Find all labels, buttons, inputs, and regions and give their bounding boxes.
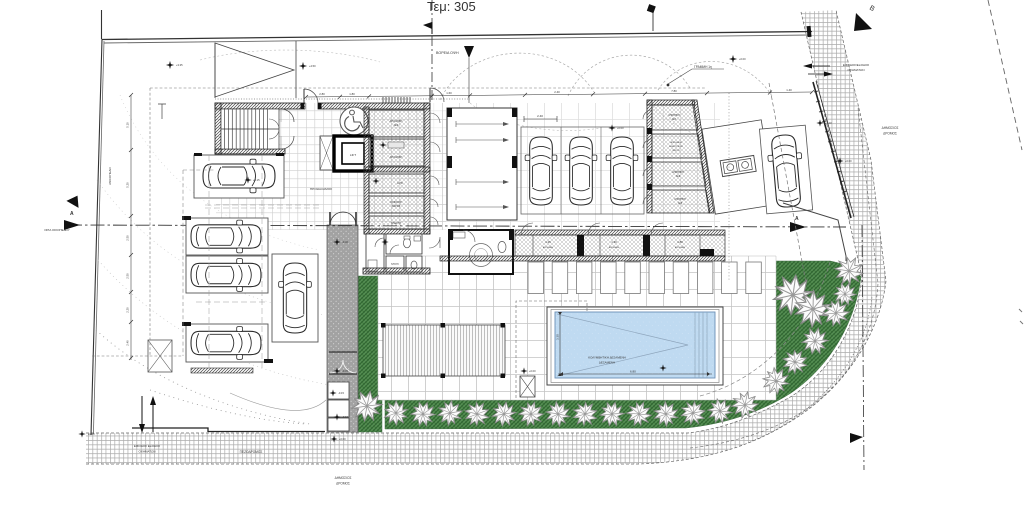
- svg-text:-0.30: -0.30: [342, 240, 348, 244]
- svg-text:1.25: 1.25: [545, 240, 551, 244]
- svg-text:ΑΝΙΣΟΠΕΔΟ: ΑΝΙΣΟΠΕΔΟ: [108, 167, 112, 185]
- svg-text:ΔΡΟΜΟΣ: ΔΡΟΜΟΣ: [336, 482, 350, 486]
- svg-text:ΑΠΟΘΗΚΗ: ΑΠΟΘΗΚΗ: [609, 246, 620, 249]
- svg-text:ΓΡΑΜΜΗ 1η: ΓΡΑΜΜΗ 1η: [694, 65, 712, 69]
- svg-text:ΚΟΙΝΟΧΡ: ΚΟΙΝΟΧΡ: [390, 201, 402, 204]
- svg-text:6.80: 6.80: [630, 370, 636, 374]
- svg-text:2.50: 2.50: [126, 235, 130, 241]
- svg-text:A: A: [70, 211, 74, 217]
- svg-text:ΧΩΡΟΣ: ΧΩΡΟΣ: [392, 205, 401, 208]
- svg-text:Νο9: Νο9: [394, 124, 399, 127]
- svg-text:ΔΗΜΟΣΙΟΣ: ΔΗΜΟΣΙΟΣ: [882, 126, 899, 130]
- svg-text:-0.15: -0.15: [338, 391, 344, 395]
- svg-text:ΚΟΛΥΜΒΗΤΙΚΗ ΔΕΞΑΜΕΝΗ: ΚΟΛΥΜΒΗΤΙΚΗ ΔΕΞΑΜΕΝΗ: [588, 356, 626, 360]
- svg-text:ΑΠΟΘΗΚΗ: ΑΠΟΘΗΚΗ: [670, 141, 681, 144]
- svg-text:2.40: 2.40: [126, 340, 130, 346]
- svg-text:Τεμ: 305: Τεμ: 305: [427, 0, 476, 14]
- svg-text:1.60: 1.60: [446, 91, 452, 95]
- svg-text:+3.35: +3.35: [176, 63, 183, 67]
- svg-text:2.40: 2.40: [554, 90, 560, 94]
- svg-text:ΔΡΟΜΟΣ: ΔΡΟΜΟΣ: [883, 132, 897, 136]
- svg-text:+0.00: +0.00: [88, 432, 95, 436]
- svg-text:2.50: 2.50: [126, 273, 130, 279]
- svg-text:+0.15: +0.15: [253, 178, 260, 182]
- svg-text:+0.00: +0.00: [825, 121, 832, 125]
- svg-text:ΟΧΗΜΑΤΩΝ: ΟΧΗΜΑΤΩΝ: [139, 450, 156, 454]
- svg-text:-0.30: -0.30: [342, 369, 348, 373]
- svg-text:ΑΠΟΘΗΚΗ: ΑΠΟΘΗΚΗ: [543, 246, 554, 249]
- svg-text:7.80: 7.80: [671, 89, 677, 93]
- svg-text:+0.00: +0.00: [339, 437, 346, 441]
- svg-text:ΟΧΗΜΑΤΩΝ: ΟΧΗΜΑΤΩΝ: [848, 68, 865, 72]
- svg-text:ΧΩΡΟΣ: ΧΩΡΟΣ: [672, 150, 680, 152]
- svg-text:ΗΛΕΚΤΡΙΚΟΣ: ΗΛΕΚΤΡΙΚΟΣ: [669, 146, 683, 148]
- svg-text:+0.00: +0.00: [739, 57, 746, 61]
- svg-text:1.30: 1.30: [611, 240, 617, 244]
- svg-text:ΕΙΣΟΔΟΣ ΕΞΟΔΟΣ: ΕΙΣΟΔΟΣ ΕΞΟΔΟΣ: [134, 444, 160, 448]
- svg-text:ΗΛΕΚΤΡ: ΗΛΕΚΤΡ: [391, 222, 401, 225]
- svg-text:2.40: 2.40: [537, 114, 543, 118]
- svg-text:ΠΕΖΟΔΡΟΜΟΣ: ΠΕΖΟΔΡΟΜΟΣ: [240, 450, 263, 454]
- svg-text:Δ.ΗΚ: Δ.ΗΚ: [397, 182, 403, 185]
- svg-text:ΠΡΟΘΑΛΑΜΟΣ: ΠΡΟΘΑΛΑΜΟΣ: [310, 187, 332, 191]
- svg-text:ΟΡΙΑ ΟΙΚΟΠΕΔΟΥ: ΟΡΙΑ ΟΙΚΟΠΕΔΟΥ: [44, 228, 70, 232]
- svg-text:ΔΗΜΟΣΙΟΣ: ΔΗΜΟΣΙΟΣ: [335, 476, 352, 480]
- svg-text:ΑΠΟΘΗΚΗ: ΑΠΟΘΗΚΗ: [668, 114, 680, 117]
- svg-text:+0.00: +0.00: [529, 369, 536, 373]
- svg-text:+0.00: +0.00: [845, 159, 852, 163]
- svg-text:2.80: 2.80: [319, 92, 325, 96]
- svg-text:ΑΠΟΘΗΚΗ: ΑΠΟΘΗΚΗ: [674, 198, 686, 201]
- svg-text:ΑΠΟΘΗΚΗ: ΑΠΟΘΗΚΗ: [672, 171, 684, 174]
- svg-text:ΕΙΣΟΔΟΣ/ΕΞΟΔΟΣ: ΕΙΣΟΔΟΣ/ΕΞΟΔΟΣ: [843, 63, 869, 67]
- svg-text:-0.10: -0.10: [342, 415, 348, 419]
- svg-text:Νο5: Νο5: [678, 203, 683, 205]
- svg-text:+4.50: +4.50: [309, 64, 316, 68]
- svg-text:ΒΟΡΕΙΑ ΟΨΗ: ΒΟΡΕΙΑ ΟΨΗ: [436, 51, 459, 55]
- svg-text:ΑΠΟΘΗΚΗ: ΑΠΟΘΗΚΗ: [390, 156, 403, 159]
- svg-text:1.80: 1.80: [349, 92, 355, 96]
- svg-text:5.20: 5.20: [126, 182, 130, 188]
- svg-text:ΑΠΟΘΗΚΗ: ΑΠΟΘΗΚΗ: [390, 120, 403, 123]
- svg-text:1.40: 1.40: [786, 88, 792, 92]
- svg-text:1.80: 1.80: [677, 240, 683, 244]
- svg-text:LIFT: LIFT: [350, 153, 356, 157]
- svg-text:A: A: [795, 216, 799, 222]
- svg-text:+0.00: +0.00: [617, 126, 624, 130]
- svg-text:ΝΤΟΥΣ: ΝΤΟΥΣ: [391, 264, 399, 266]
- svg-text:2.20: 2.20: [126, 307, 130, 313]
- svg-text:Νο7: Νο7: [672, 119, 677, 121]
- svg-text:ΑΠΟΘΗΚΗ: ΑΠΟΘΗΚΗ: [675, 246, 686, 249]
- svg-text:3.30: 3.30: [556, 334, 560, 340]
- svg-text:ΔΕΞΑΜΕΝΗ: ΔΕΞΑΜΕΝΗ: [599, 361, 615, 365]
- svg-text:5.10: 5.10: [126, 122, 130, 128]
- svg-text:Νο6: Νο6: [676, 176, 681, 178]
